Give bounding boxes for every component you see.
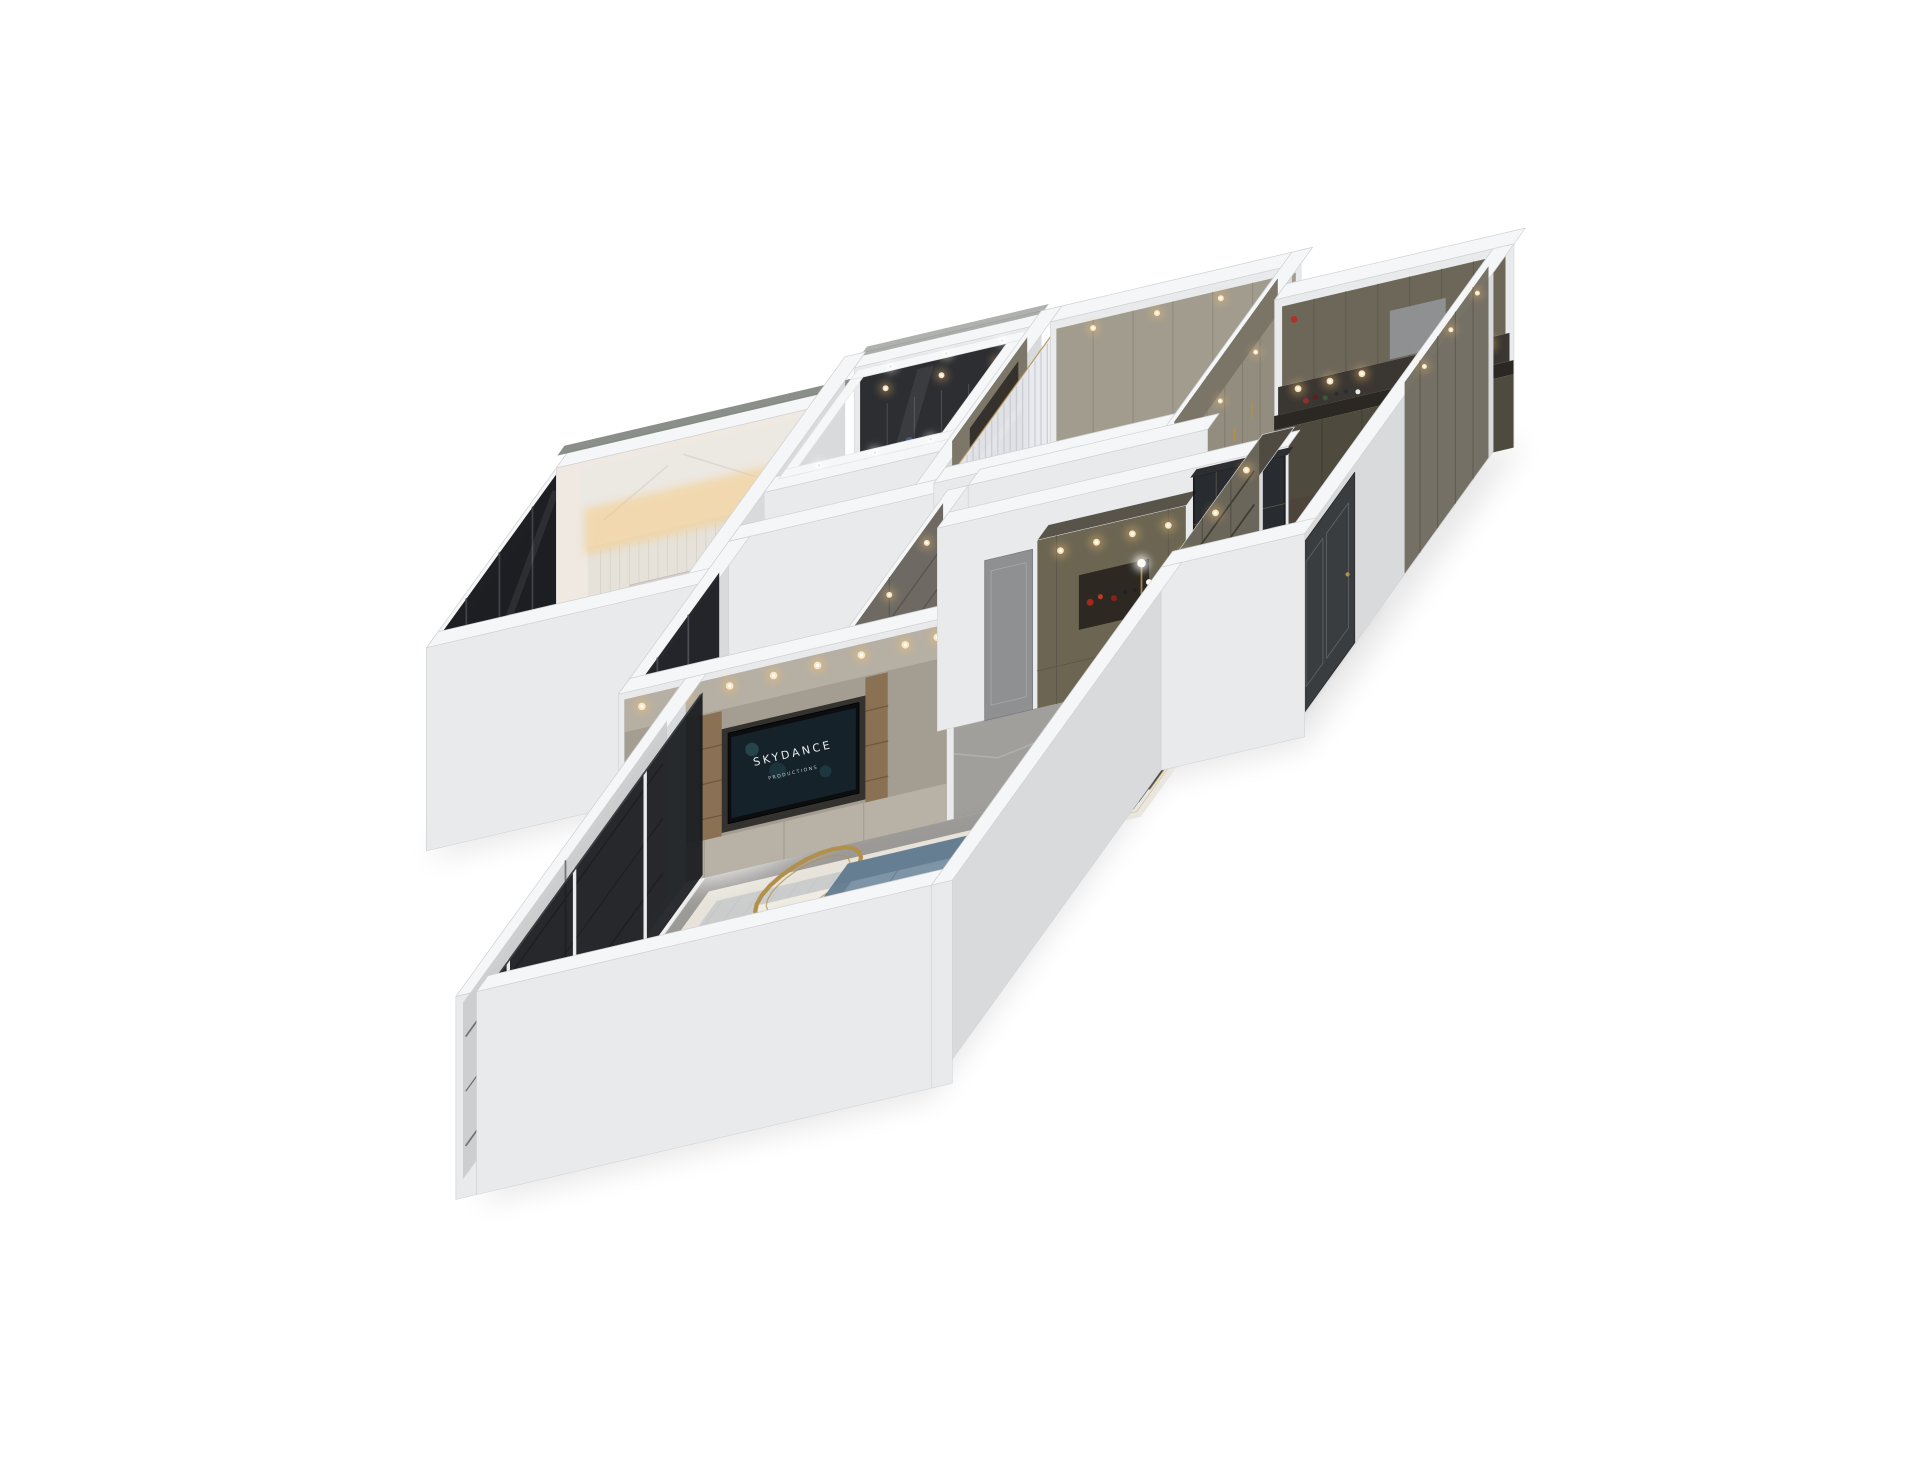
apartment-3d-svg: SKYDANCEPRODUCTIONS [0,0,1920,1484]
tv-shelf-column [865,672,887,816]
door-knob [1346,572,1350,576]
bottles [1303,398,1309,404]
tv-shelf-column [699,711,721,855]
floorplan-render-stage: SKYDANCEPRODUCTIONS [0,0,1920,1484]
interior-door [985,549,1033,720]
